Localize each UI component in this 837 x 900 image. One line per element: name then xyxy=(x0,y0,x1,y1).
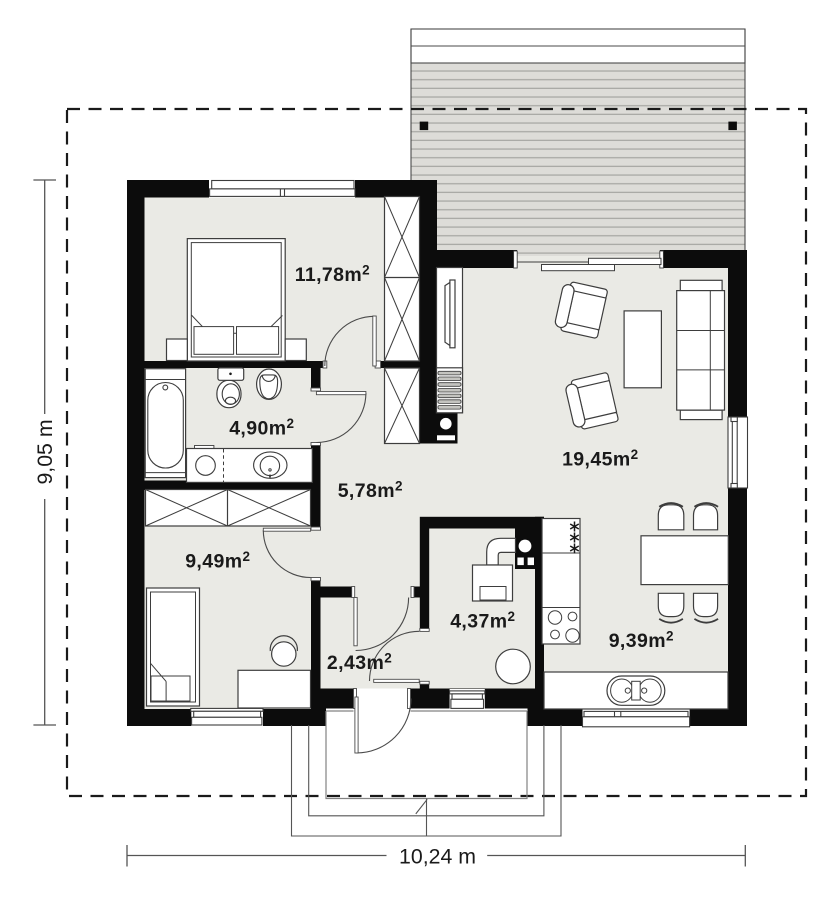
svg-text:10,24 m: 10,24 m xyxy=(399,845,476,869)
svg-text:5,78m2: 5,78m2 xyxy=(338,479,403,503)
svg-text:4,90m2: 4,90m2 xyxy=(229,416,294,440)
svg-text:9,05 m: 9,05 m xyxy=(33,419,57,484)
svg-text:19,45m2: 19,45m2 xyxy=(562,447,638,471)
svg-text:11,78m2: 11,78m2 xyxy=(295,262,370,286)
svg-text:4,37m2: 4,37m2 xyxy=(450,609,515,633)
svg-text:9,49m2: 9,49m2 xyxy=(185,549,250,573)
svg-text:2,43m2: 2,43m2 xyxy=(327,651,392,675)
svg-text:9,39m2: 9,39m2 xyxy=(609,629,674,653)
